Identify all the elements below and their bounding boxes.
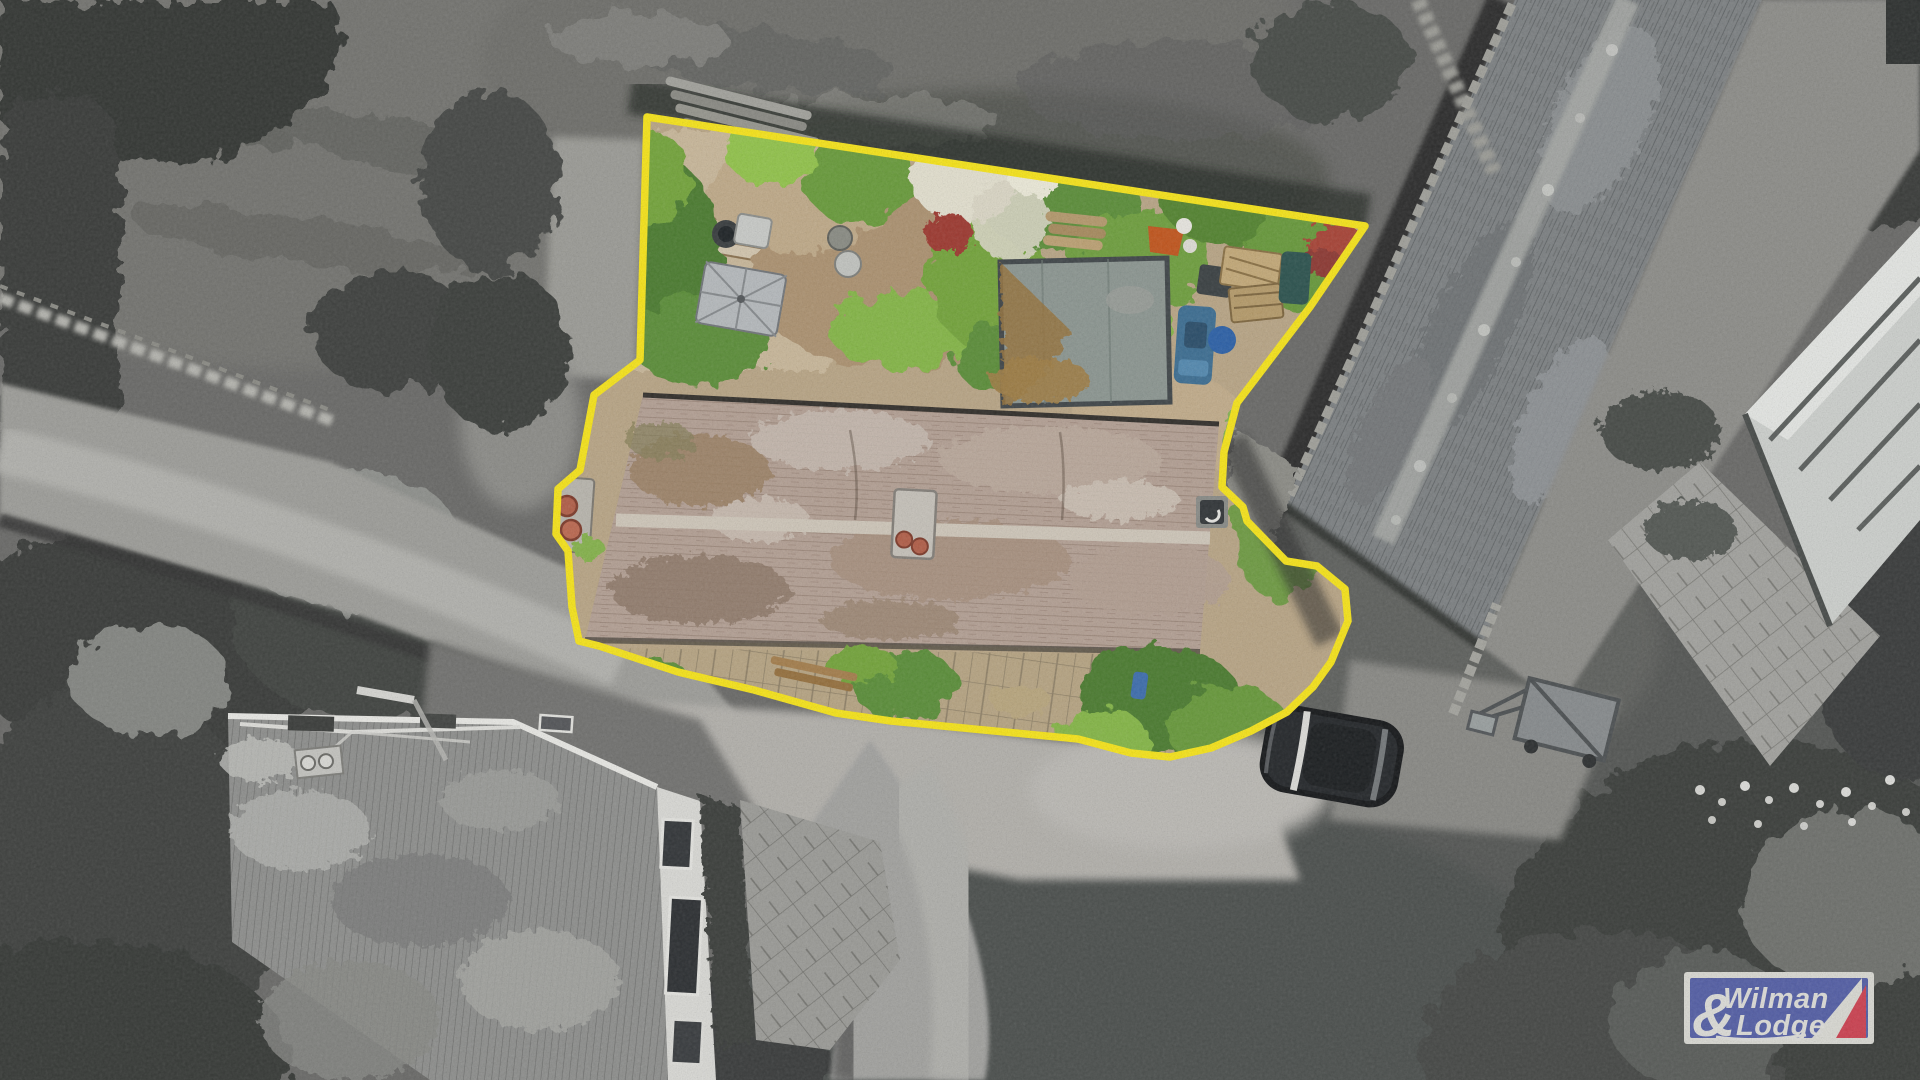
photo-grain-light: [0, 0, 1920, 1080]
aerial-photo-canvas: & Wilman Lodge: [0, 0, 1920, 1080]
aerial-photo: & Wilman Lodge: [0, 0, 1920, 1080]
